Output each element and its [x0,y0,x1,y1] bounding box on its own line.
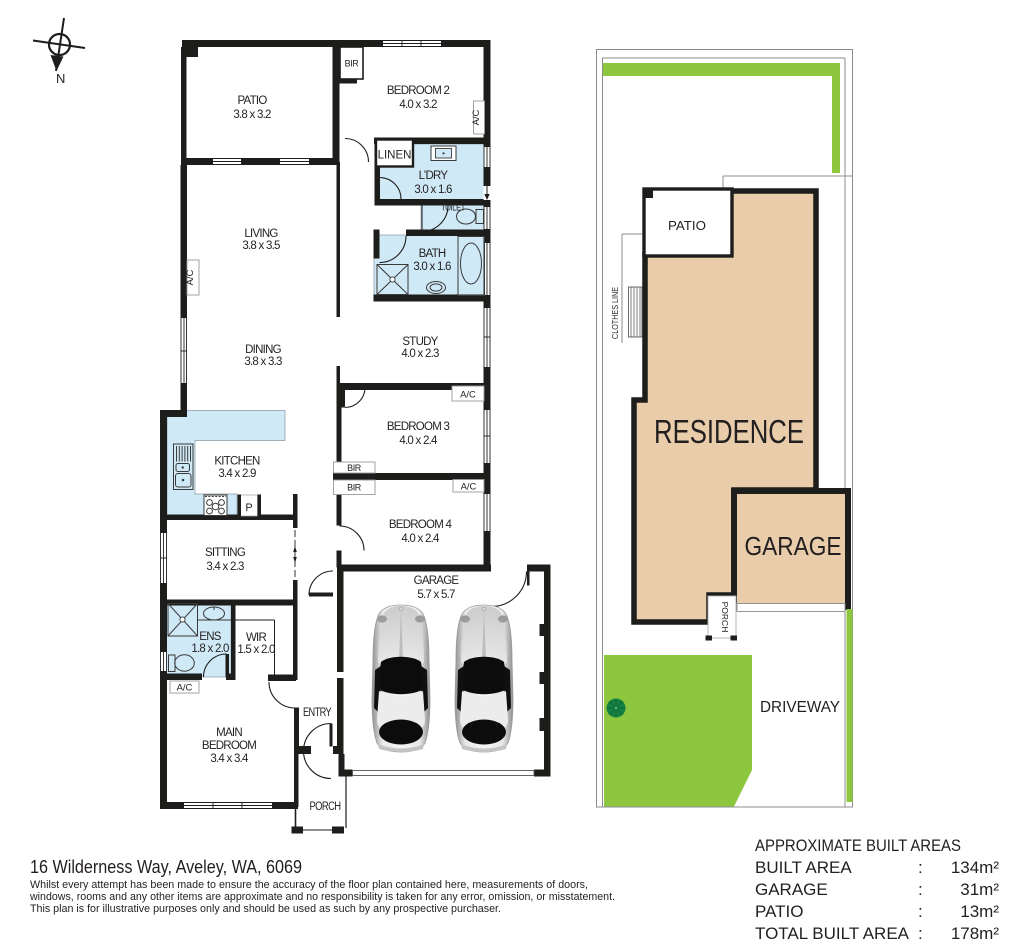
svg-text:DRIVEWAY: DRIVEWAY [760,699,840,716]
svg-text:1.5 x 2.0: 1.5 x 2.0 [237,644,275,656]
svg-text:ENTRY: ENTRY [303,707,332,719]
svg-text:N: N [56,71,65,86]
svg-text::: : [918,902,923,921]
svg-text:16 Wilderness Way, Aveley, WA,: 16 Wilderness Way, Aveley, WA, 6069 [30,856,302,877]
svg-text:LINEN: LINEN [378,150,412,162]
svg-text:This plan is for illustrative: This plan is for illustrative purposes o… [30,903,501,915]
svg-text:KITCHEN: KITCHEN [214,456,260,468]
svg-text:MAIN: MAIN [216,727,242,739]
svg-text:3.4 x 2.9: 3.4 x 2.9 [218,468,256,480]
svg-text::: : [918,858,923,877]
svg-text:RESIDENCE: RESIDENCE [654,413,804,450]
svg-text:Whilst every attempt has been: Whilst every attempt has been made to en… [30,879,588,891]
svg-text:BIR: BIR [347,463,362,473]
svg-text:3.4 x 2.3: 3.4 x 2.3 [206,561,244,573]
svg-text:A/C: A/C [460,390,476,401]
svg-text:4.0 x 2.4: 4.0 x 2.4 [401,533,440,545]
svg-text:APPROXIMATE BUILT AREAS: APPROXIMATE BUILT AREAS [755,836,961,855]
svg-text:3.4 x 3.4: 3.4 x 3.4 [210,753,249,765]
svg-text:A/C: A/C [461,482,477,493]
svg-text:4.0 x 3.2: 4.0 x 3.2 [399,99,437,111]
svg-text:BEDROOM: BEDROOM [202,740,256,752]
svg-text:PORCH: PORCH [310,801,341,813]
svg-text:BEDROOM 4: BEDROOM 4 [389,519,453,531]
svg-text:4.0 x 2.4: 4.0 x 2.4 [399,435,438,447]
svg-text:PATIO: PATIO [668,218,706,233]
svg-text:STUDY: STUDY [402,336,438,348]
svg-text:13m²: 13m² [960,902,999,921]
svg-text:4.0 x 2.3: 4.0 x 2.3 [401,348,439,360]
svg-text:31m²: 31m² [960,880,999,899]
svg-text:134m²: 134m² [951,858,1000,877]
svg-text:windows, rooms and any other i: windows, rooms and any other items are a… [29,891,615,903]
svg-text:5.7 x 5.7: 5.7 x 5.7 [417,589,455,601]
svg-text:3.0 x 1.6: 3.0 x 1.6 [413,261,451,273]
svg-text:P: P [245,502,252,514]
svg-text:BIR: BIR [347,483,362,493]
svg-text:BEDROOM 3: BEDROOM 3 [387,421,450,433]
svg-text:A/C: A/C [177,683,193,694]
svg-text:3.8 x 3.5: 3.8 x 3.5 [242,240,280,252]
svg-text:PATIO: PATIO [237,95,267,107]
svg-text:3.8 x 3.3: 3.8 x 3.3 [244,356,282,368]
svg-text:PATIO: PATIO [755,902,804,921]
svg-text:L’DRY: L’DRY [419,170,449,182]
svg-text:WIR: WIR [246,632,267,644]
svg-text:TOTAL BUILT AREA: TOTAL BUILT AREA [755,924,910,943]
svg-text:GARAGE: GARAGE [745,531,842,561]
svg-text:LIVING: LIVING [244,228,278,240]
svg-text:178m²: 178m² [951,924,1000,943]
svg-text::: : [918,880,923,899]
svg-text::: : [918,924,923,943]
svg-text:ENS: ENS [199,631,221,643]
svg-text:GARAGE: GARAGE [755,880,828,899]
svg-text:A/C: A/C [471,109,482,125]
svg-text:TOILET: TOILET [441,203,466,213]
svg-text:1.8 x 2.0: 1.8 x 2.0 [191,643,229,655]
svg-text:GARAGE: GARAGE [414,575,460,587]
svg-text:3.8 x 3.2: 3.8 x 3.2 [233,109,271,121]
svg-text:BATH: BATH [419,248,446,260]
svg-text:DINING: DINING [245,344,282,356]
svg-text:BIR: BIR [345,59,360,69]
svg-text:SITTING: SITTING [205,547,246,559]
svg-text:CLOTHES LINE: CLOTHES LINE [610,287,620,339]
svg-text:A/C: A/C [185,269,196,285]
svg-text:BEDROOM 2: BEDROOM 2 [387,85,450,97]
svg-text:PORCH: PORCH [720,602,730,633]
svg-text:3.0 x 1.6: 3.0 x 1.6 [414,184,452,196]
svg-text:BUILT AREA: BUILT AREA [755,858,852,877]
